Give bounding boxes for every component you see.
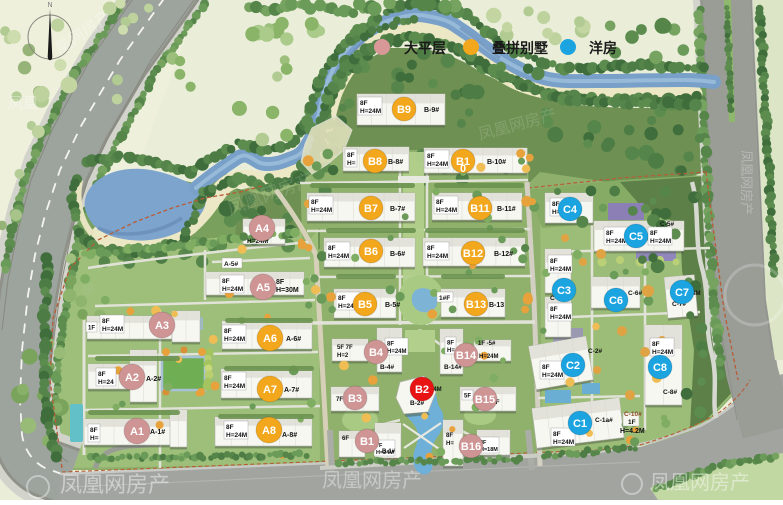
svg-text:大平层: 大平层 — [404, 40, 446, 56]
svg-text:H=: H= — [347, 160, 356, 167]
svg-text:凤凰网房产: 凤凰网房产 — [650, 471, 750, 494]
svg-text:H=24M: H=24M — [222, 286, 243, 293]
svg-text:8F: 8F — [387, 342, 394, 348]
svg-text:C1: C1 — [573, 418, 587, 430]
svg-text:8F: 8F — [550, 258, 558, 265]
svg-text:8F: 8F — [98, 371, 106, 378]
svg-text:8F: 8F — [553, 431, 561, 438]
svg-text:N: N — [47, 2, 52, 9]
svg-text:H=30M: H=30M — [276, 287, 299, 294]
svg-text:H=: H= — [90, 435, 99, 442]
svg-text:C-10#: C-10# — [624, 411, 642, 418]
svg-text:H=24M: H=24M — [479, 354, 499, 360]
svg-text:5F 7F: 5F 7F — [337, 345, 353, 351]
svg-text:凤凰网房产: 凤凰网房产 — [739, 150, 754, 215]
svg-text:8F: 8F — [606, 230, 614, 237]
svg-text:8F: 8F — [328, 245, 336, 252]
svg-text:H=24M: H=24M — [542, 372, 563, 379]
svg-text:洋房: 洋房 — [589, 40, 617, 56]
svg-text:C4: C4 — [563, 204, 578, 216]
svg-text:8F: 8F — [436, 199, 444, 206]
svg-text:8F: 8F — [542, 364, 550, 371]
svg-text:5F: 5F — [464, 394, 471, 400]
svg-text:B13: B13 — [466, 299, 486, 311]
svg-text:凤凰网房产: 凤凰网房产 — [322, 469, 422, 492]
svg-text:C-5#: C-5# — [660, 221, 674, 228]
svg-text:A-5#: A-5# — [224, 261, 238, 268]
svg-text:叠拼别墅: 叠拼别墅 — [492, 40, 548, 56]
svg-text:A4: A4 — [255, 223, 270, 235]
svg-text:H=24M: H=24M — [427, 253, 448, 260]
svg-text:C6: C6 — [609, 295, 623, 307]
svg-text:A-2#: A-2# — [146, 376, 161, 383]
svg-text:H=24: H=24 — [98, 379, 114, 386]
svg-text:B5: B5 — [358, 299, 372, 311]
svg-text:6F: 6F — [342, 436, 349, 442]
svg-text:B-9#: B-9# — [424, 107, 439, 114]
svg-text:B-12#: B-12# — [494, 251, 513, 258]
svg-text:B2: B2 — [415, 384, 429, 396]
svg-text:A1: A1 — [130, 426, 144, 438]
svg-text:C5: C5 — [629, 231, 643, 243]
svg-text:8F: 8F — [222, 278, 230, 285]
svg-text:0: 0 — [460, 163, 466, 175]
svg-text:8F: 8F — [446, 433, 453, 439]
svg-text:H=4.2M: H=4.2M — [620, 428, 645, 435]
svg-text:8F: 8F — [276, 279, 285, 286]
svg-text:A2: A2 — [125, 372, 139, 384]
svg-text:H=24M: H=24M — [550, 266, 571, 273]
svg-text:H=24M: H=24M — [224, 383, 245, 390]
svg-text:8F: 8F — [652, 341, 660, 348]
svg-text:H=24M: H=24M — [650, 238, 671, 245]
svg-text:C3: C3 — [557, 285, 571, 297]
svg-text:H=24M: H=24M — [436, 207, 457, 214]
svg-text:1F: 1F — [628, 419, 636, 426]
svg-text:B-10#: B-10# — [487, 159, 506, 166]
svg-text:B-4#: B-4# — [380, 364, 394, 371]
svg-text:A6: A6 — [263, 333, 277, 345]
svg-text:1F: 1F — [88, 326, 95, 332]
svg-text:A-6#: A-6# — [286, 336, 301, 343]
svg-text:8F: 8F — [224, 328, 232, 335]
svg-text:8F: 8F — [102, 318, 110, 325]
svg-text:B14: B14 — [456, 350, 477, 362]
svg-text:A-1#: A-1# — [150, 429, 165, 436]
svg-text:B7: B7 — [364, 203, 378, 215]
svg-text:C7: C7 — [675, 287, 689, 299]
svg-text:8F: 8F — [550, 306, 558, 313]
svg-text:C-8#: C-8# — [663, 389, 677, 396]
svg-text:8F: 8F — [311, 199, 319, 206]
svg-text:H=2: H=2 — [337, 353, 349, 359]
svg-text:8F: 8F — [338, 295, 346, 302]
svg-text:8F: 8F — [427, 245, 435, 252]
svg-text:H=24M: H=24M — [224, 336, 245, 343]
svg-text:H=24M: H=24M — [102, 326, 123, 333]
svg-text:8F: 8F — [347, 152, 355, 159]
svg-text:B4: B4 — [369, 347, 384, 359]
svg-text:C2: C2 — [566, 360, 580, 372]
svg-text:A5: A5 — [256, 282, 270, 294]
svg-text:B6: B6 — [364, 246, 378, 258]
svg-text:8F: 8F — [427, 153, 435, 160]
svg-text:B-1#: B-1# — [382, 449, 396, 455]
svg-text:H=24M: H=24M — [311, 207, 332, 214]
svg-text:B12: B12 — [463, 248, 483, 260]
svg-text:A-7#: A-7# — [284, 387, 299, 394]
svg-text:B-7#: B-7# — [390, 206, 405, 213]
svg-text:H=24M: H=24M — [387, 349, 407, 355]
svg-text:8F: 8F — [447, 341, 454, 347]
svg-text:H=24M: H=24M — [360, 108, 381, 115]
svg-text:B-8#: B-8# — [388, 159, 403, 166]
svg-text:C-2#: C-2# — [588, 348, 602, 355]
svg-text:8F: 8F — [90, 427, 98, 434]
svg-text:B9: B9 — [397, 104, 411, 116]
svg-text:凤凰网房产: 凤凰网房产 — [60, 472, 170, 497]
svg-text:H=: H= — [446, 441, 454, 447]
svg-text:B8: B8 — [368, 156, 382, 168]
svg-text:A-8#: A-8# — [282, 432, 297, 439]
svg-text:C-6#: C-6# — [628, 290, 642, 297]
svg-text:H=24M: H=24M — [553, 439, 574, 446]
svg-text:B11: B11 — [470, 203, 490, 215]
svg-text:A8: A8 — [262, 425, 276, 437]
svg-text:1F -5#: 1F -5# — [478, 341, 496, 347]
svg-text:A7: A7 — [263, 384, 277, 396]
svg-text:C8: C8 — [653, 362, 667, 374]
svg-text:B-11#: B-11# — [497, 206, 516, 213]
svg-text:8F: 8F — [226, 424, 234, 431]
svg-text:B-13: B-13 — [489, 302, 504, 309]
svg-text:H=24M: H=24M — [226, 432, 247, 439]
svg-text:1#F: 1#F — [439, 295, 450, 302]
svg-text:凤凰: 凤凰 — [8, 95, 38, 112]
svg-text:8F: 8F — [360, 100, 368, 107]
svg-text:B-6#: B-6# — [390, 251, 405, 258]
svg-text:8F: 8F — [650, 230, 658, 237]
svg-text:H=24M: H=24M — [427, 161, 448, 168]
svg-text:B15: B15 — [475, 394, 495, 406]
svg-text:B16: B16 — [461, 441, 481, 453]
svg-text:H=24M: H=24M — [328, 253, 349, 260]
svg-text:C-1a#: C-1a# — [595, 417, 613, 424]
svg-text:B3: B3 — [348, 393, 362, 405]
svg-text:B-5#: B-5# — [385, 302, 400, 309]
svg-text:A3: A3 — [155, 320, 169, 332]
svg-text:B1: B1 — [360, 436, 374, 448]
svg-text:8F: 8F — [224, 375, 232, 382]
svg-text:H=24M: H=24M — [550, 314, 571, 321]
svg-text:7F: 7F — [336, 397, 343, 403]
